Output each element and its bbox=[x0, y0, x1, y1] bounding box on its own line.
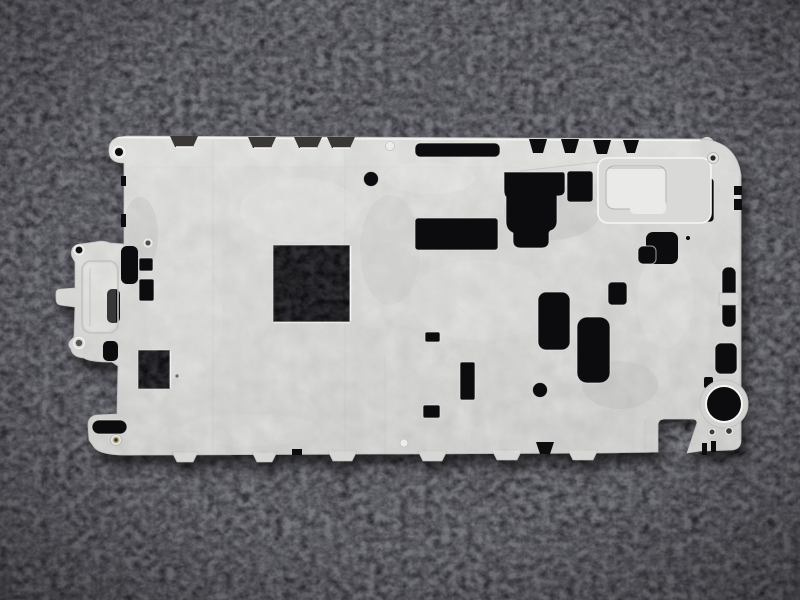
stepped-cutout-b bbox=[638, 246, 656, 264]
round-hole-top bbox=[364, 172, 379, 187]
small-square-cutout bbox=[608, 282, 627, 305]
bracket-screw-hole-bottom bbox=[76, 340, 82, 346]
tiny-rect-hole-3 bbox=[423, 405, 440, 418]
speaker-pocket bbox=[598, 158, 711, 223]
surface-dimple-1 bbox=[386, 142, 395, 151]
bracket-gap-slot-lower bbox=[103, 341, 118, 361]
square-cutout-center-right bbox=[567, 171, 593, 202]
pin-hole-2 bbox=[146, 241, 151, 246]
tiny-rect-hole-2 bbox=[460, 362, 475, 400]
bottom-left-slot bbox=[92, 420, 127, 434]
left-edge-square-hole-2 bbox=[139, 279, 154, 301]
slot-bridge bbox=[719, 293, 739, 305]
bracket-gap-slot-upper bbox=[121, 246, 138, 284]
pin-hole-3 bbox=[175, 374, 178, 377]
pin-hole-1 bbox=[686, 236, 690, 240]
rounded-cutout-center bbox=[538, 292, 570, 350]
photo-canvas bbox=[0, 0, 800, 600]
tall-rounded-cutout bbox=[577, 317, 610, 383]
mid-rect-cutout bbox=[415, 218, 498, 250]
tiny-rect-hole-1 bbox=[425, 332, 440, 342]
right-edge-square-hole bbox=[715, 343, 737, 374]
screw-dot-2 bbox=[726, 428, 733, 435]
surface-dimple-2 bbox=[400, 439, 408, 447]
left-edge-square-hole-1 bbox=[139, 258, 153, 271]
bracket-screw-hole-top bbox=[76, 247, 83, 254]
round-hole-bottom bbox=[533, 383, 548, 398]
screw-dot-1 bbox=[709, 429, 715, 435]
screw-hole-top-left bbox=[115, 148, 123, 156]
camera-opening bbox=[700, 380, 748, 428]
top-long-slot bbox=[415, 143, 500, 157]
